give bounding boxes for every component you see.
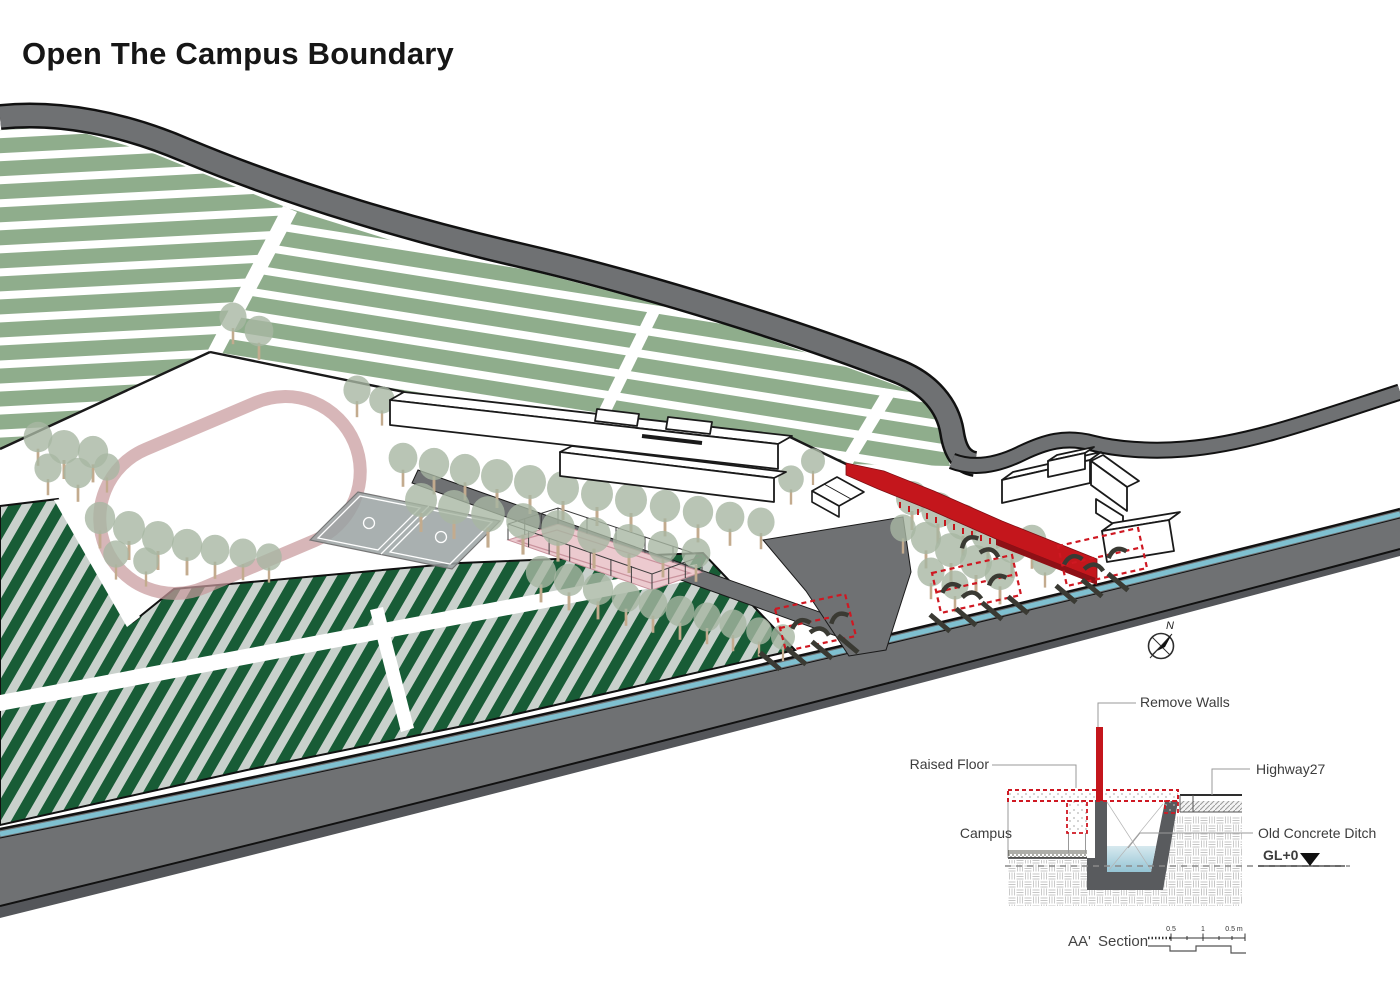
section-soil xyxy=(1166,816,1242,905)
label-remove-walls: Remove Walls xyxy=(1140,694,1230,710)
diagram-canvas: Open The Campus Boundary xyxy=(0,0,1400,989)
compass-north-label: N xyxy=(1166,620,1174,632)
label-old-concrete-ditch: Old Concrete Ditch xyxy=(1258,825,1376,841)
scale-bar: 0.5 1 0.5 m xyxy=(1148,926,1246,953)
compass-icon: N xyxy=(1149,620,1175,659)
section-grass xyxy=(1008,850,1087,858)
section-ditch-water xyxy=(1107,846,1156,872)
label-raised-floor: Raised Floor xyxy=(910,756,990,772)
site-plan: N xyxy=(0,0,1400,989)
section-caption-kind: Section xyxy=(1098,933,1148,950)
label-highway27: Highway27 xyxy=(1256,761,1325,777)
label-gl0: GL+0 xyxy=(1263,847,1299,863)
section-caption-name: AA' xyxy=(1068,933,1091,950)
gl-marker-icon xyxy=(1300,853,1320,866)
section-raised-floor xyxy=(1008,790,1178,833)
scale-tick: 0.5 xyxy=(1166,926,1176,933)
section-remove-wall xyxy=(1096,727,1103,801)
east-road xyxy=(952,392,1400,465)
section-road xyxy=(1180,795,1242,812)
label-campus: Campus xyxy=(960,825,1012,841)
scale-tick: 0.5 m xyxy=(1225,926,1243,933)
pavilion xyxy=(812,477,864,517)
scale-tick: 1 xyxy=(1201,926,1205,933)
section-detail: Remove Walls Raised Floor Campus Highway… xyxy=(910,694,1377,953)
scale-profile xyxy=(1148,946,1246,953)
